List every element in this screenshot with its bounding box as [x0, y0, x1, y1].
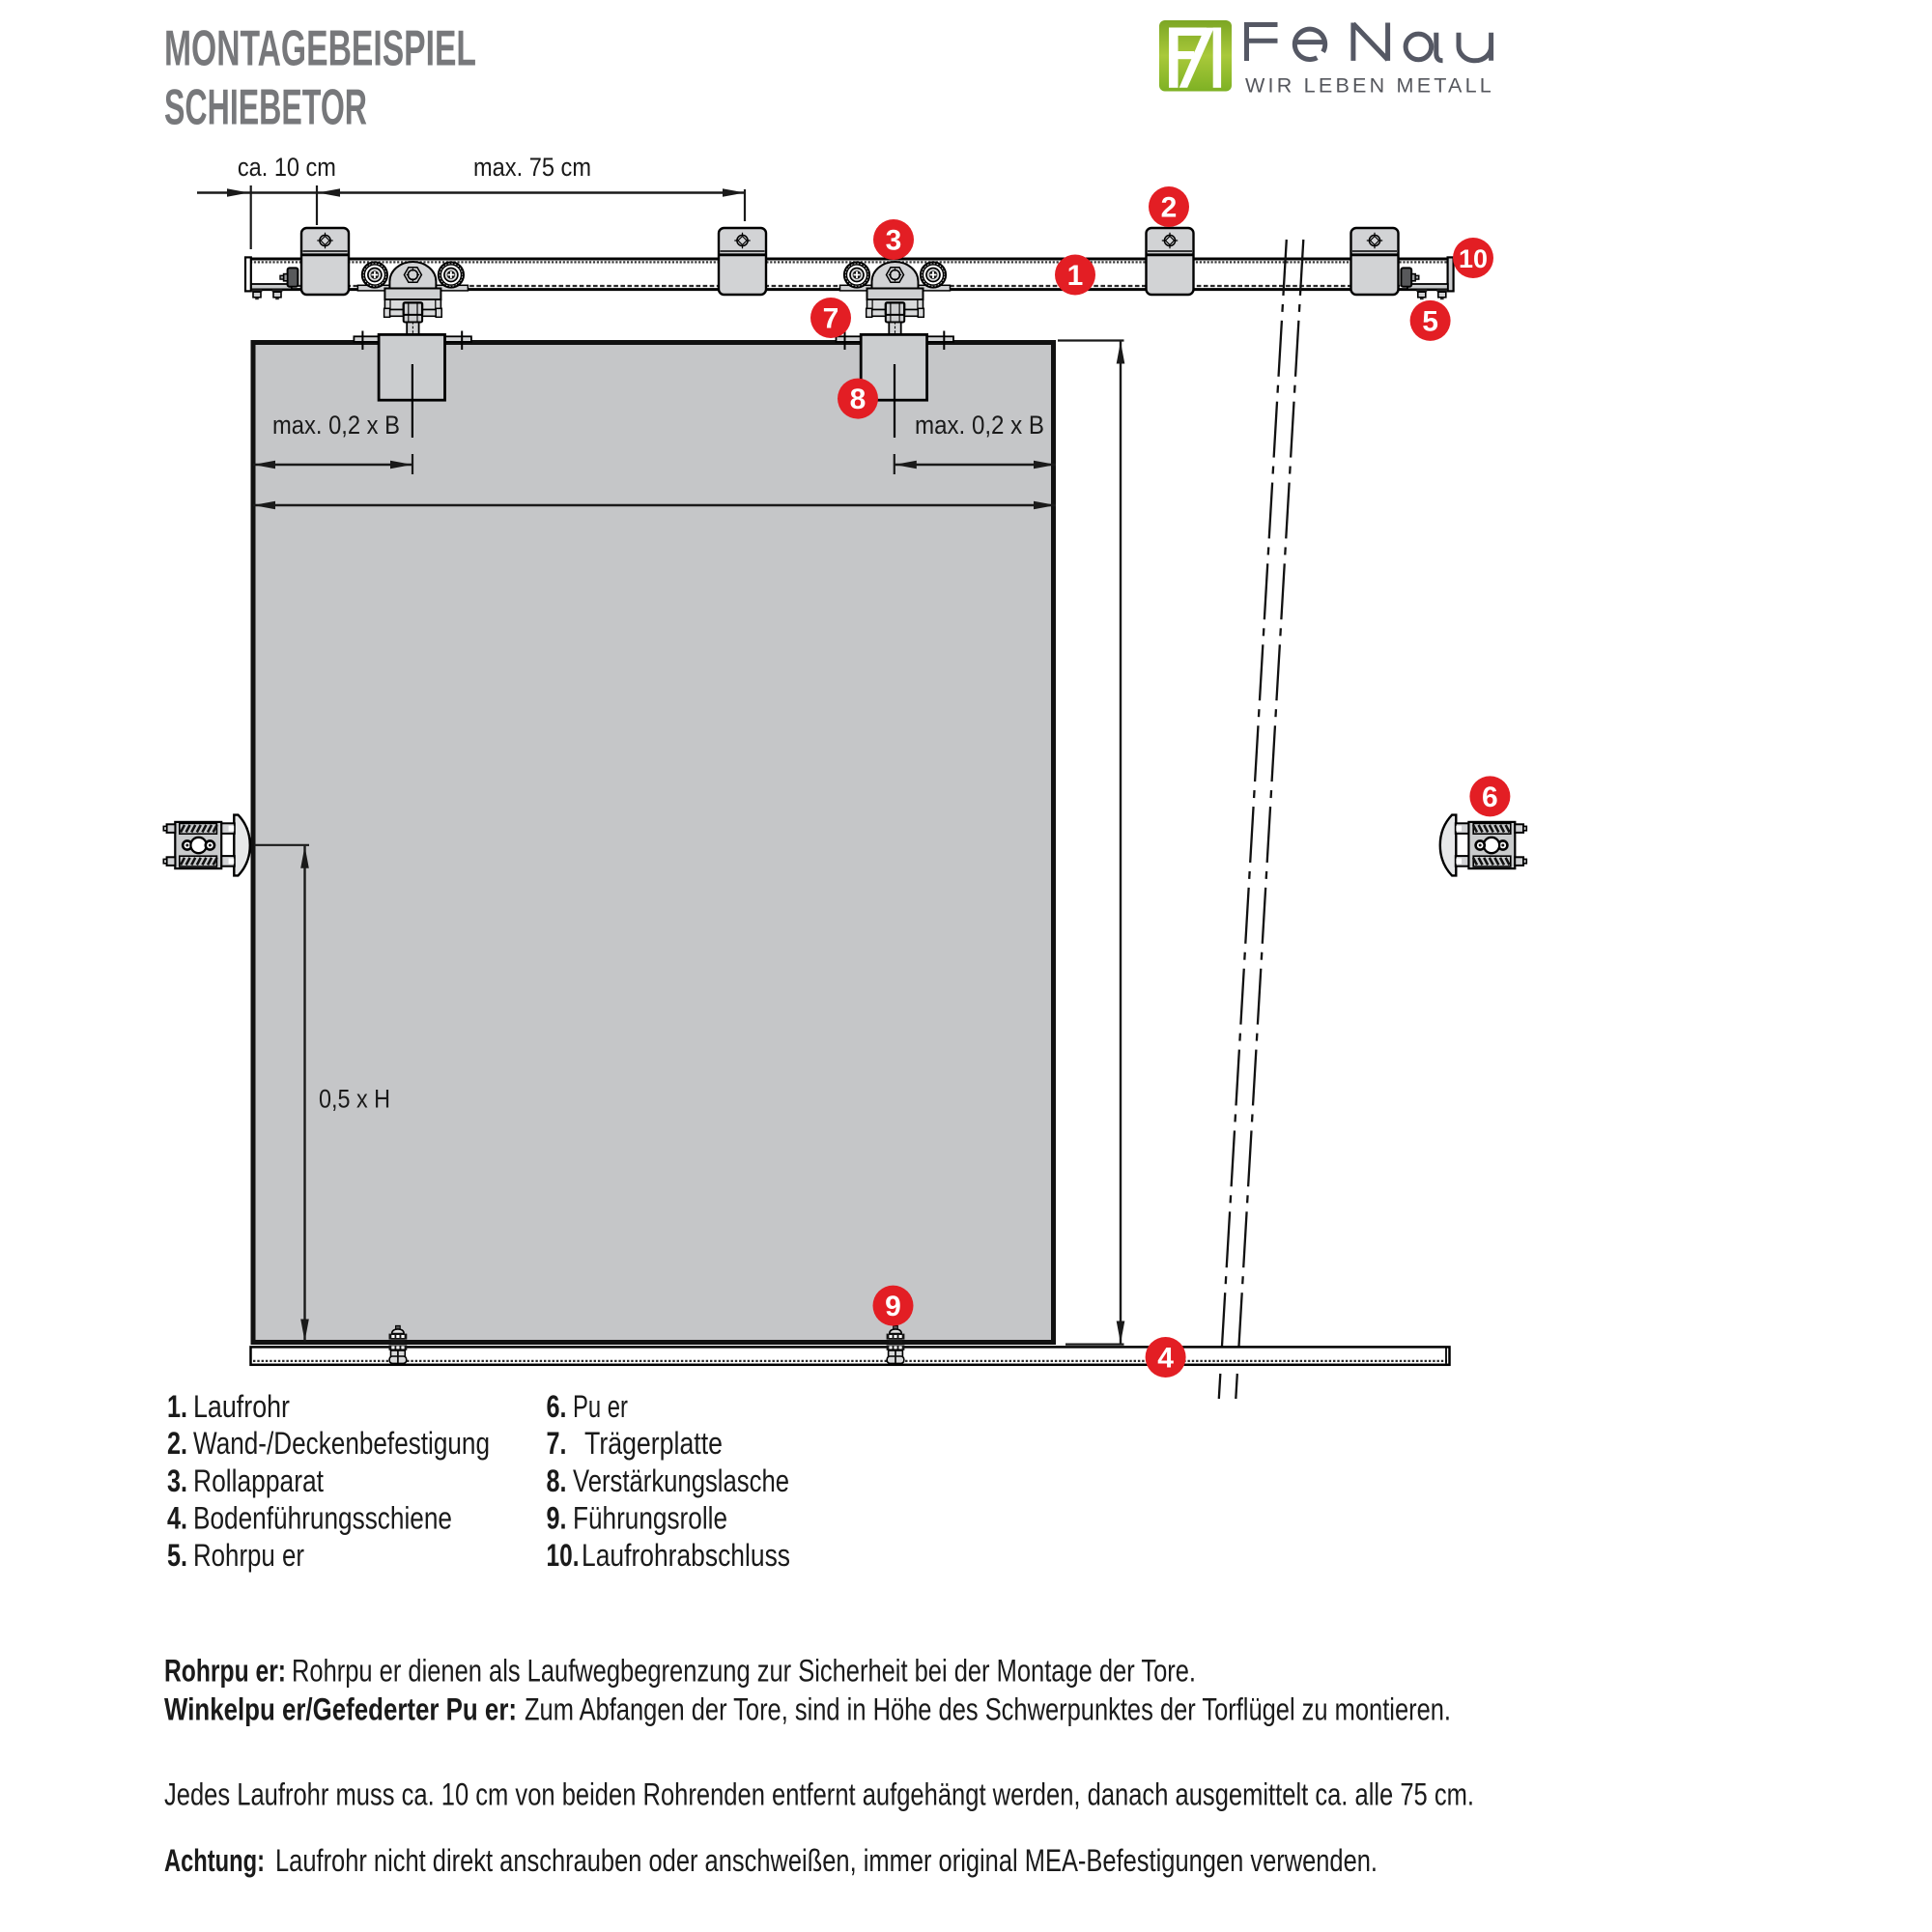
- svg-text:8.: 8.: [547, 1463, 567, 1498]
- svg-text:WIR LEBEN METALL: WIR LEBEN METALL: [1245, 73, 1494, 97]
- svg-text:6: 6: [1482, 781, 1498, 813]
- svg-text:8: 8: [850, 384, 867, 415]
- svg-text:Verstärkungslasche: Verstärkungslasche: [573, 1463, 789, 1498]
- svg-text:max. 75 cm: max. 75 cm: [473, 153, 591, 182]
- svg-text:2: 2: [1161, 192, 1178, 224]
- svg-text:9.: 9.: [547, 1500, 567, 1535]
- svg-text:0,5 x H: 0,5 x H: [319, 1085, 390, 1114]
- svg-text:Winkelpu er/Gefederter Pu er:: Winkelpu er/Gefederter Pu er:: [164, 1692, 517, 1727]
- svg-text:Laufrohr nicht direkt anschrau: Laufrohr nicht direkt anschrauben oder a…: [275, 1843, 1378, 1878]
- svg-text:4: 4: [1157, 1343, 1174, 1375]
- svg-text:2.: 2.: [167, 1426, 187, 1461]
- svg-text:6.: 6.: [547, 1389, 567, 1424]
- svg-text:Zum Abfangen der Tore, sind in: Zum Abfangen der Tore, sind in Höhe des …: [525, 1692, 1451, 1727]
- svg-text:10.: 10.: [547, 1538, 580, 1573]
- svg-text:Trägerplatte: Trägerplatte: [584, 1426, 723, 1461]
- svg-text:Rohrpu er:: Rohrpu er:: [164, 1654, 286, 1689]
- svg-text:Bodenführungsschiene: Bodenführungsschiene: [193, 1500, 452, 1535]
- svg-text:7.: 7.: [547, 1426, 567, 1461]
- svg-text:max. 0,2 x B: max. 0,2 x B: [915, 411, 1044, 440]
- svg-text:Achtung:: Achtung:: [164, 1843, 265, 1878]
- svg-text:max. 0,2 x B: max. 0,2 x B: [272, 411, 400, 440]
- svg-text:Rohrpu er dienen als Laufwegbe: Rohrpu er dienen als Laufwegbegrenzung z…: [292, 1654, 1196, 1689]
- svg-text:5: 5: [1422, 305, 1438, 337]
- svg-text:10: 10: [1459, 244, 1488, 273]
- svg-text:7: 7: [823, 303, 839, 335]
- svg-text:Laufrohr: Laufrohr: [193, 1389, 290, 1424]
- svg-text:Laufrohrabschluss: Laufrohrabschluss: [582, 1538, 790, 1573]
- svg-text:Jedes Laufrohr muss ca. 10 cm: Jedes Laufrohr muss ca. 10 cm von beiden…: [164, 1777, 1474, 1812]
- svg-text:3.: 3.: [167, 1463, 187, 1498]
- svg-text:1.: 1.: [167, 1389, 187, 1424]
- svg-text:Pu er: Pu er: [573, 1389, 628, 1424]
- svg-text:ca. 10 cm: ca. 10 cm: [238, 153, 336, 182]
- svg-text:Rollapparat: Rollapparat: [193, 1463, 324, 1498]
- svg-text:5.: 5.: [167, 1538, 187, 1573]
- svg-text:4.: 4.: [167, 1500, 187, 1535]
- svg-text:9: 9: [885, 1291, 901, 1322]
- svg-text:Rohrpu er: Rohrpu er: [193, 1538, 304, 1573]
- svg-text:3: 3: [886, 225, 902, 257]
- svg-text:1: 1: [1067, 260, 1084, 292]
- svg-text:MONTAGEBEISPIEL: MONTAGEBEISPIEL: [164, 21, 476, 77]
- svg-text:Wand-/Deckenbefestigung: Wand-/Deckenbefestigung: [193, 1426, 490, 1461]
- svg-text:Führungsrolle: Führungsrolle: [573, 1500, 727, 1535]
- svg-text:SCHIEBETOR: SCHIEBETOR: [164, 80, 367, 136]
